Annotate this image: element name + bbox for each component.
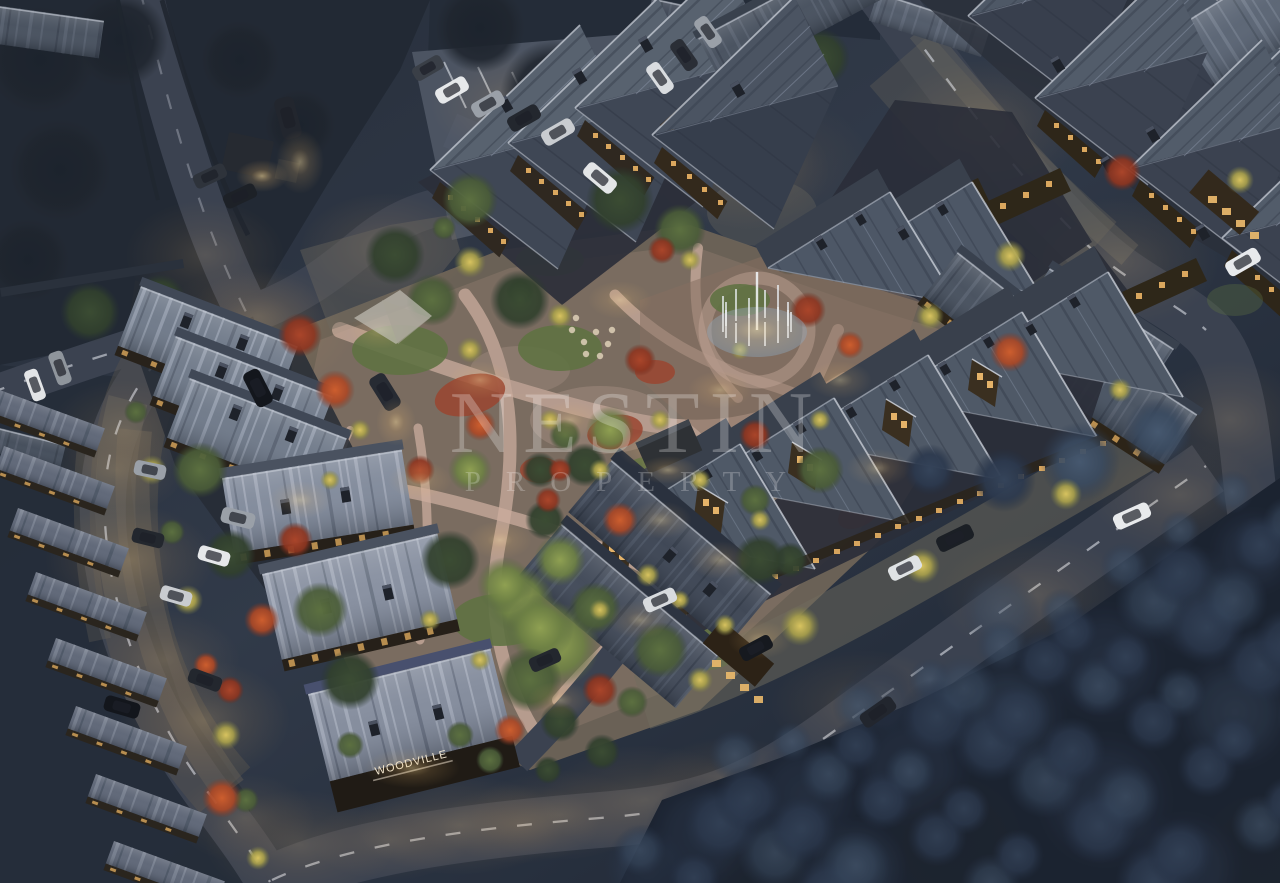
svg-text:NESTIN: NESTIN — [450, 375, 823, 472]
svg-text:PROPERTY: PROPERTY — [465, 466, 812, 498]
